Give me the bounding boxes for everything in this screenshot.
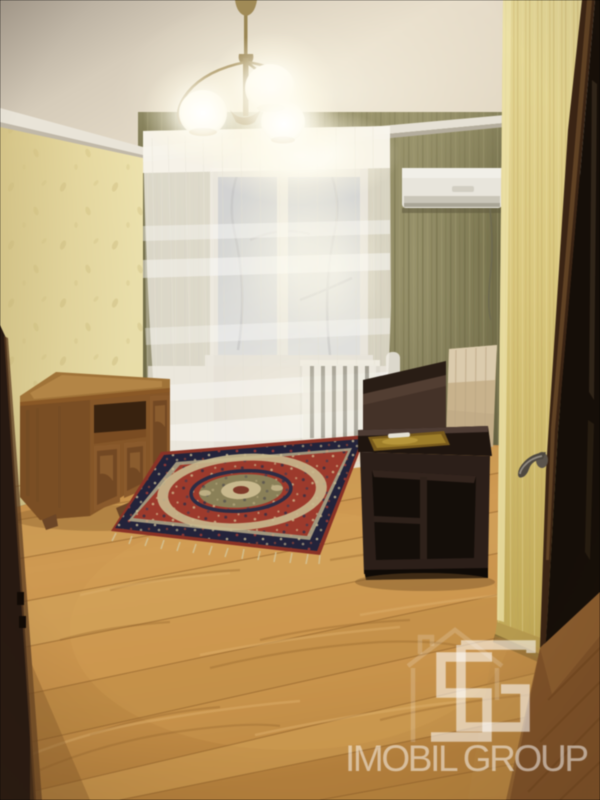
svg-text:IMOBIL GROUP: IMOBIL GROUP xyxy=(345,738,590,779)
